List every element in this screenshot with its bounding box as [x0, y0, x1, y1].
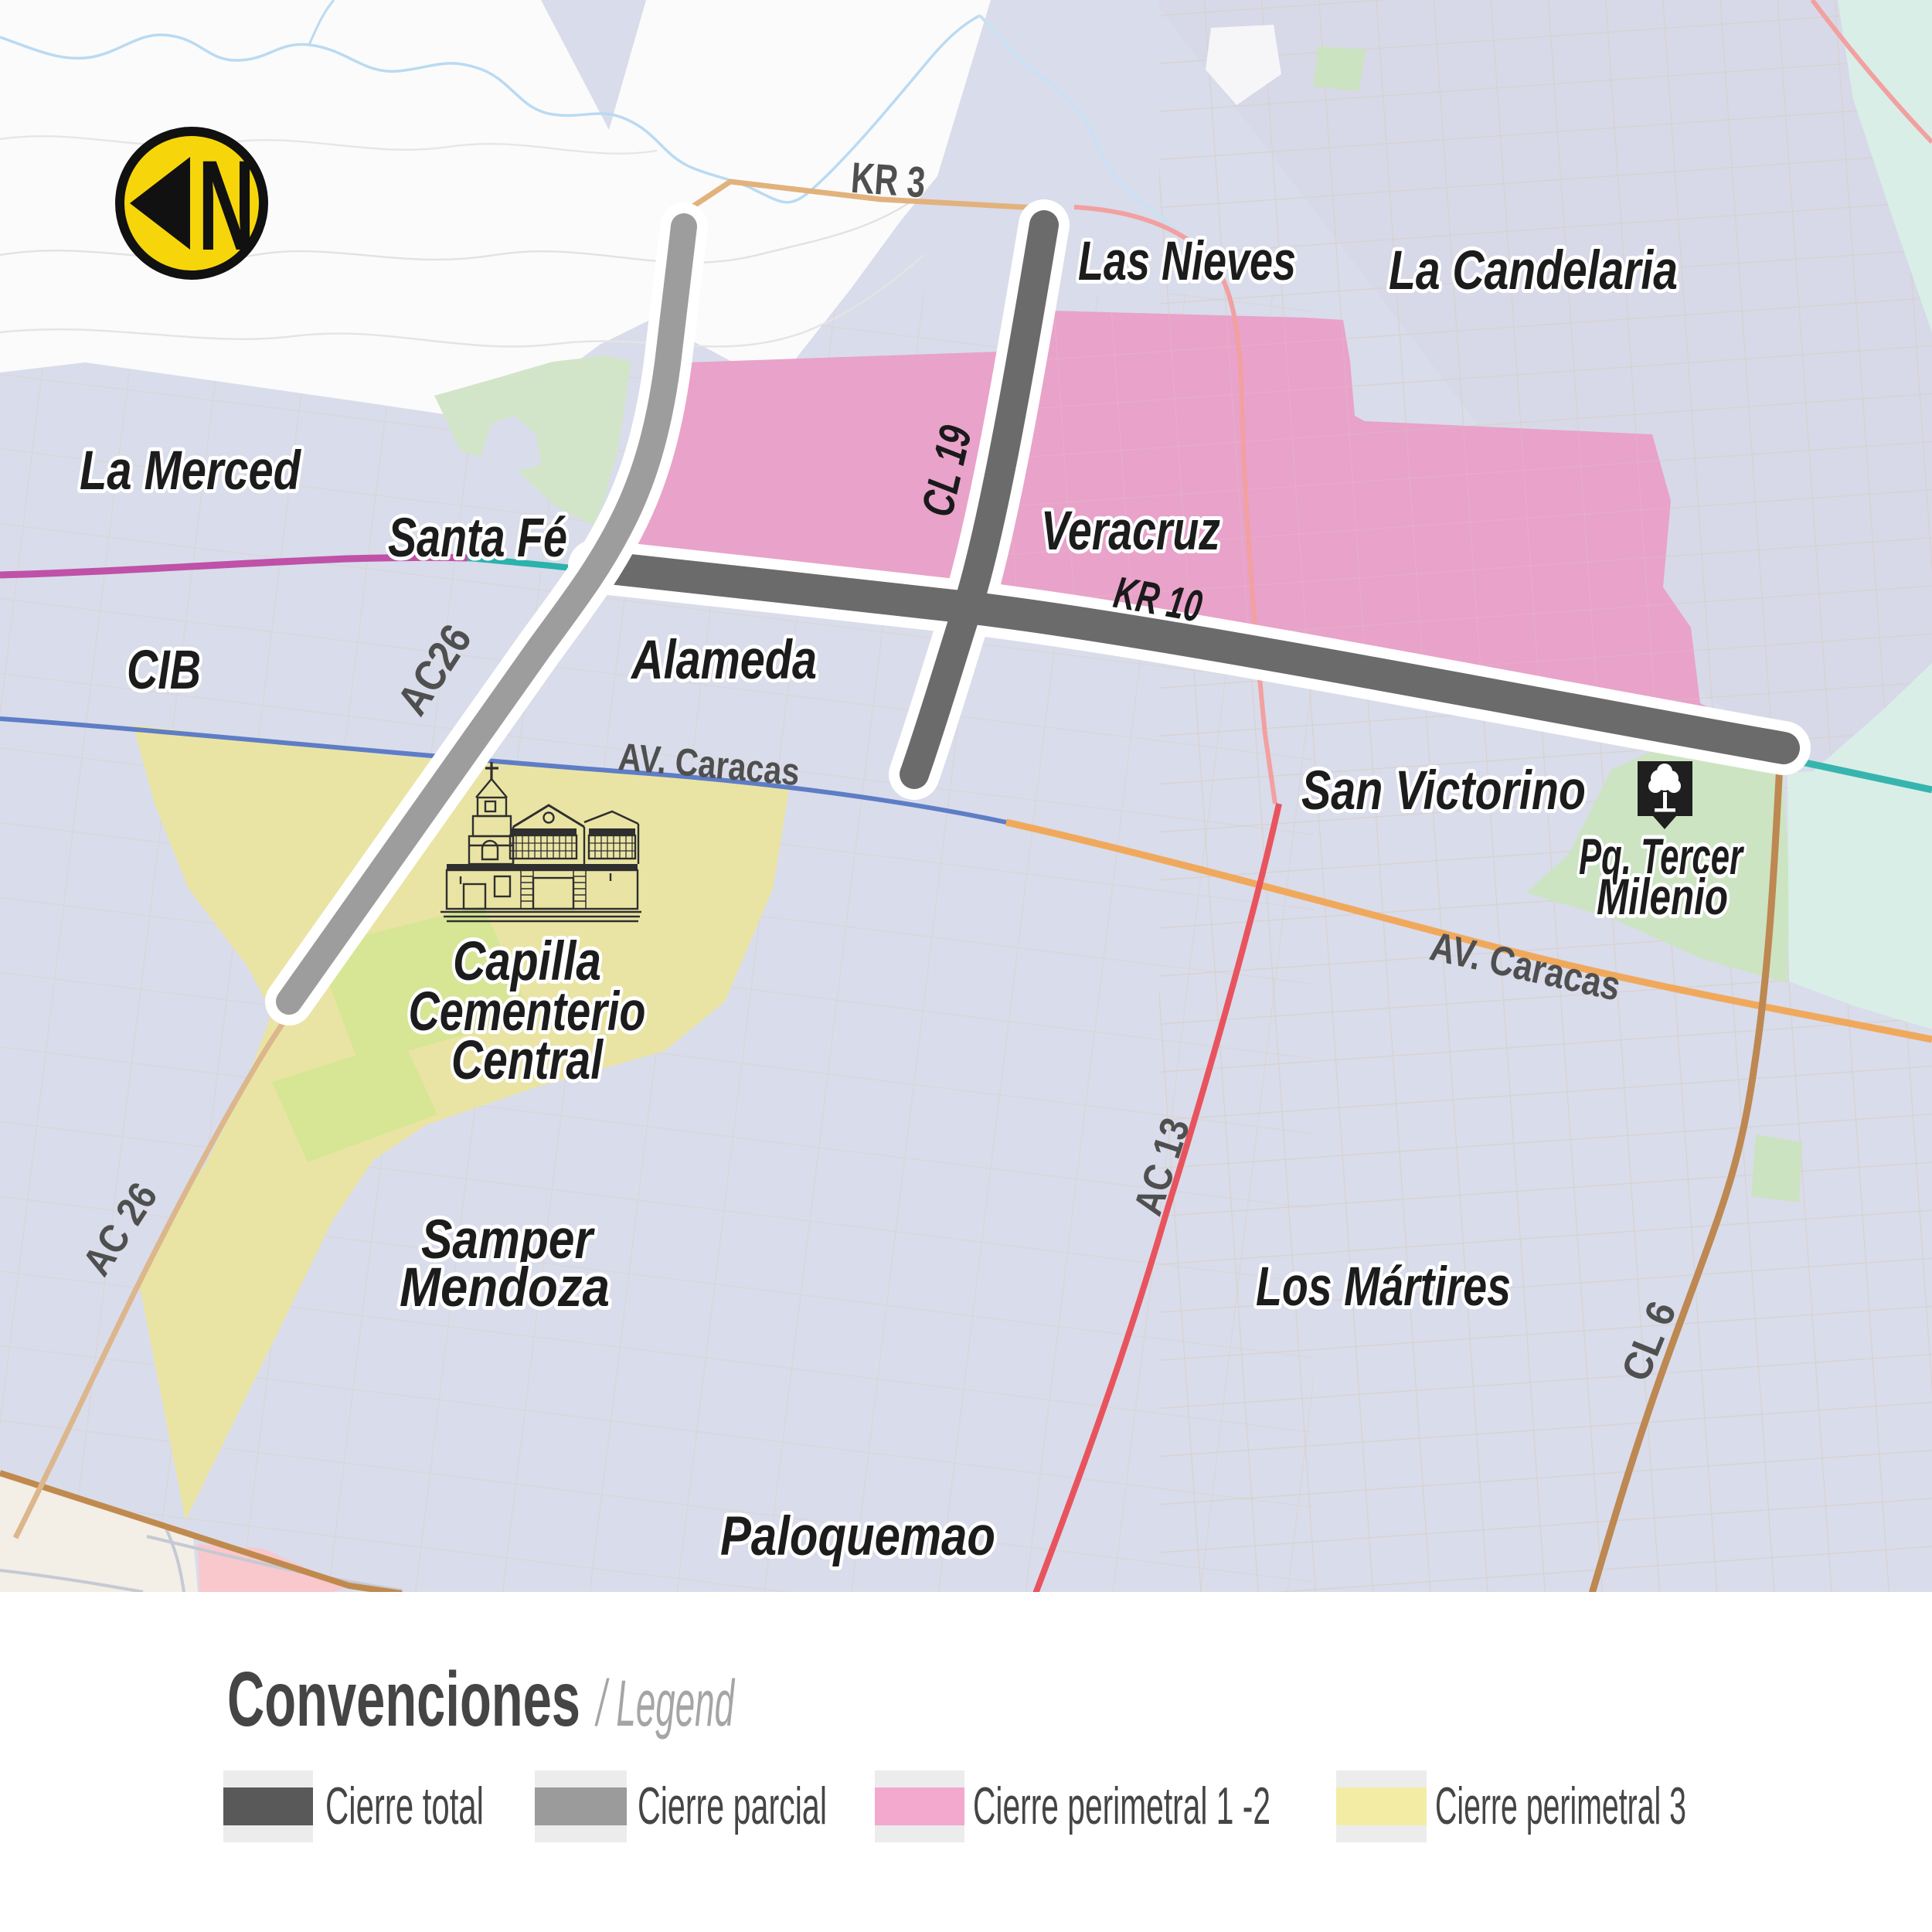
svg-text:Santa Fé: Santa Fé: [388, 508, 567, 569]
svg-text:N: N: [198, 134, 255, 277]
svg-text:Milenio: Milenio: [1597, 868, 1728, 925]
svg-text:Cierre perimetral 1 -2: Cierre perimetral 1 -2: [973, 1777, 1270, 1835]
svg-text:Veracruz: Veracruz: [1041, 501, 1220, 562]
svg-text:Paloquemao: Paloquemao: [720, 1506, 995, 1567]
svg-text:/ Legend: / Legend: [594, 1667, 735, 1740]
svg-text:Cierre total: Cierre total: [325, 1777, 484, 1835]
svg-text:Las Nieves: Las Nieves: [1078, 231, 1296, 292]
svg-text:Los Mártires: Los Mártires: [1256, 1257, 1511, 1318]
svg-text:KR 3: KR 3: [849, 153, 927, 207]
svg-text:La Merced: La Merced: [80, 440, 301, 502]
svg-text:Central: Central: [451, 1030, 604, 1091]
svg-text:Alameda: Alameda: [630, 630, 817, 691]
svg-text:Mendoza: Mendoza: [400, 1257, 610, 1318]
svg-text:La Candelaria: La Candelaria: [1389, 240, 1678, 301]
svg-text:CIB: CIB: [127, 640, 201, 701]
svg-text:Cierre perimetral 3: Cierre perimetral 3: [1435, 1777, 1686, 1835]
svg-text:San Victorino: San Victorino: [1301, 760, 1586, 821]
svg-text:Convenciones: Convenciones: [227, 1656, 580, 1743]
svg-text:Cierre parcial: Cierre parcial: [638, 1777, 827, 1835]
